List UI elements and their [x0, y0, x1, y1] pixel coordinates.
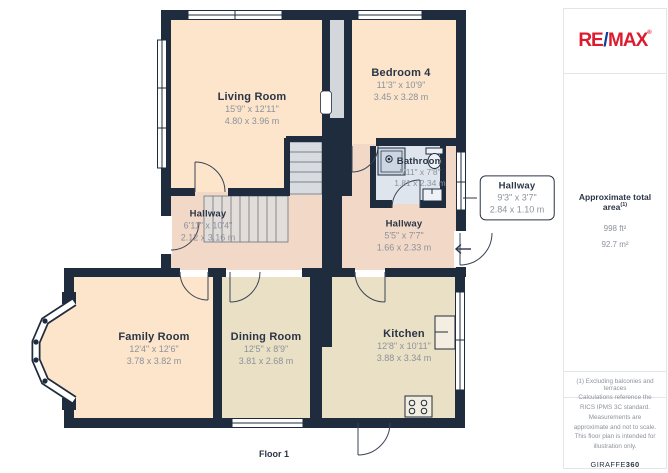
room-label-hallway-main: Hallway 6'11" x 10'4" 2.12 x 3.16 m: [181, 208, 236, 243]
total-area-section: Approximate total area(1) 998 ft² 92.7 m…: [564, 74, 666, 372]
info-sidebar: RE/MAX® Approximate total area(1) 998 ft…: [563, 8, 667, 469]
logo-re: RE: [578, 30, 602, 51]
area-title: Approximate total area: [579, 192, 651, 212]
floorplan-page: Living Room 15'9" x 12'11" 4.80 x 3.96 m…: [0, 0, 668, 473]
room-label-hallway-callout: Hallway 9'3" x 3'7" 2.84 x 1.10 m: [480, 175, 555, 220]
room-label-bathroom: Bathroom 5'11" x 7'8" 1.81 x 2.34 m: [394, 156, 446, 190]
area-metric: 92.7 m²: [601, 237, 628, 253]
giraffe-brand-suffix: 360: [626, 460, 640, 469]
room-label-bedroom4: Bedroom 4 11'3" x 10'9" 3.45 x 3.28 m: [371, 67, 430, 103]
room-label-dining: Dining Room 12'5" x 8'9" 3.81 x 2.68 m: [231, 331, 302, 367]
remax-logo: RE/MAX®: [564, 9, 666, 74]
area-footnote-marker: (1): [620, 202, 627, 208]
room-label-kitchen: Kitchen 12'8" x 10'11" 3.88 x 3.34 m: [377, 328, 432, 364]
room-label-family: Family Room 12'4" x 12'6" 3.78 x 3.82 m: [118, 331, 189, 367]
logo-max: MAX: [608, 30, 647, 51]
floor-label: Floor 1: [259, 449, 289, 459]
registered-mark: ®: [647, 30, 651, 36]
disclaimer-text: Calculations reference the RICS IPMS 3C …: [571, 393, 659, 452]
giraffe-brand: GIRAFFE: [590, 460, 625, 469]
room-label-hallway-small: Hallway 5'5" x 7'7" 1.66 x 2.33 m: [377, 218, 432, 253]
room-label-living: Living Room 15'9" x 12'11" 4.80 x 3.96 m: [218, 91, 287, 127]
disclaimer-section: Calculations reference the RICS IPMS 3C …: [564, 398, 666, 468]
area-imperial: 998 ft²: [604, 221, 627, 237]
